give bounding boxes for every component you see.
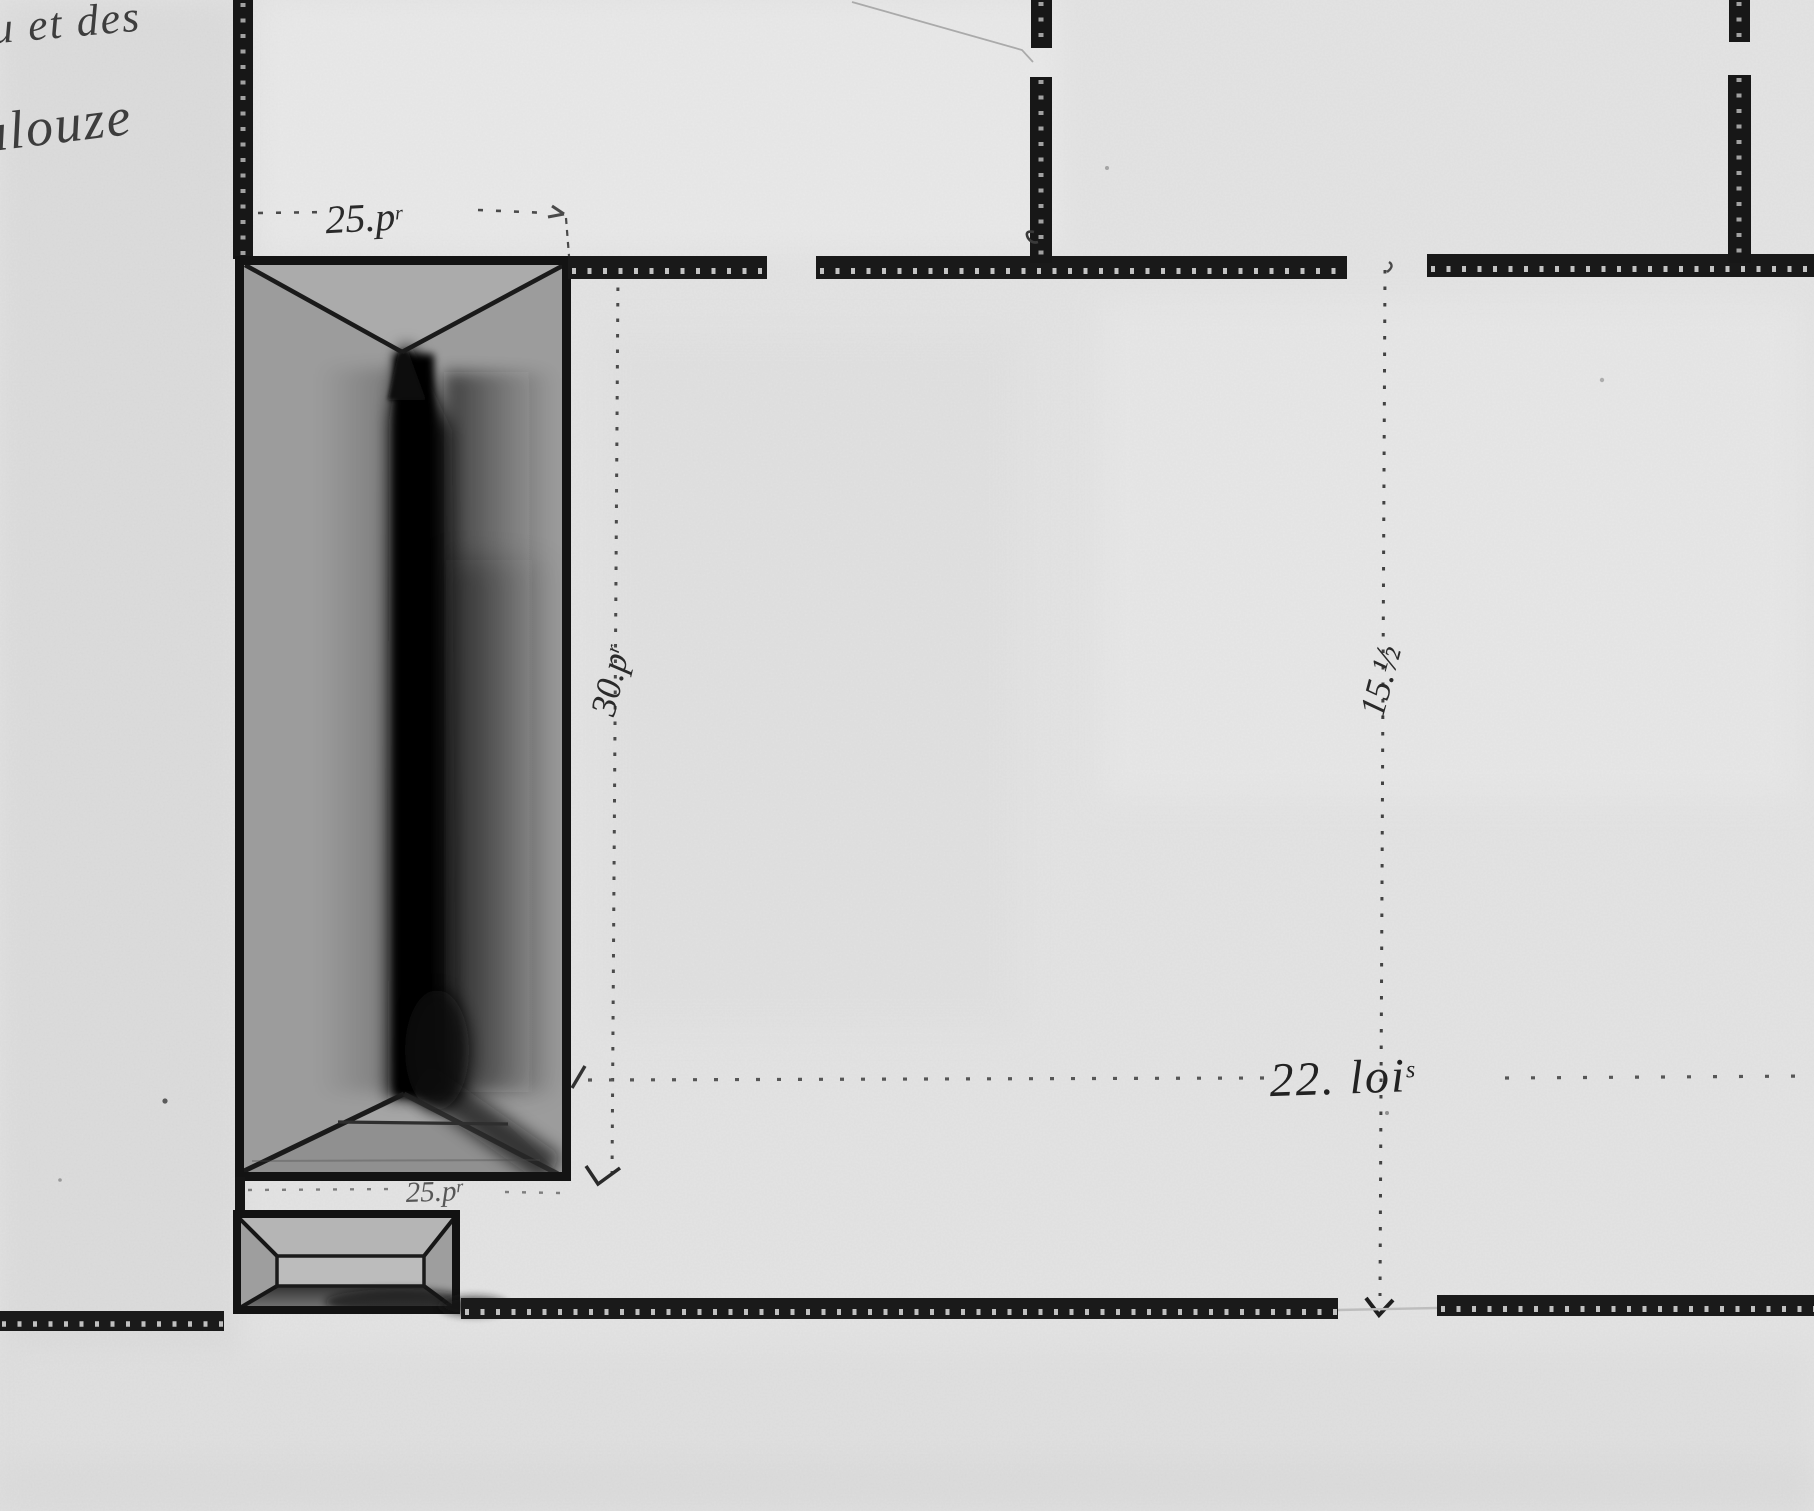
svg-text:25.pr: 25.pr — [324, 193, 404, 242]
svg-text:22. lois: 22. lois — [1269, 1049, 1419, 1107]
svg-text:25.pr: 25.pr — [405, 1175, 465, 1209]
